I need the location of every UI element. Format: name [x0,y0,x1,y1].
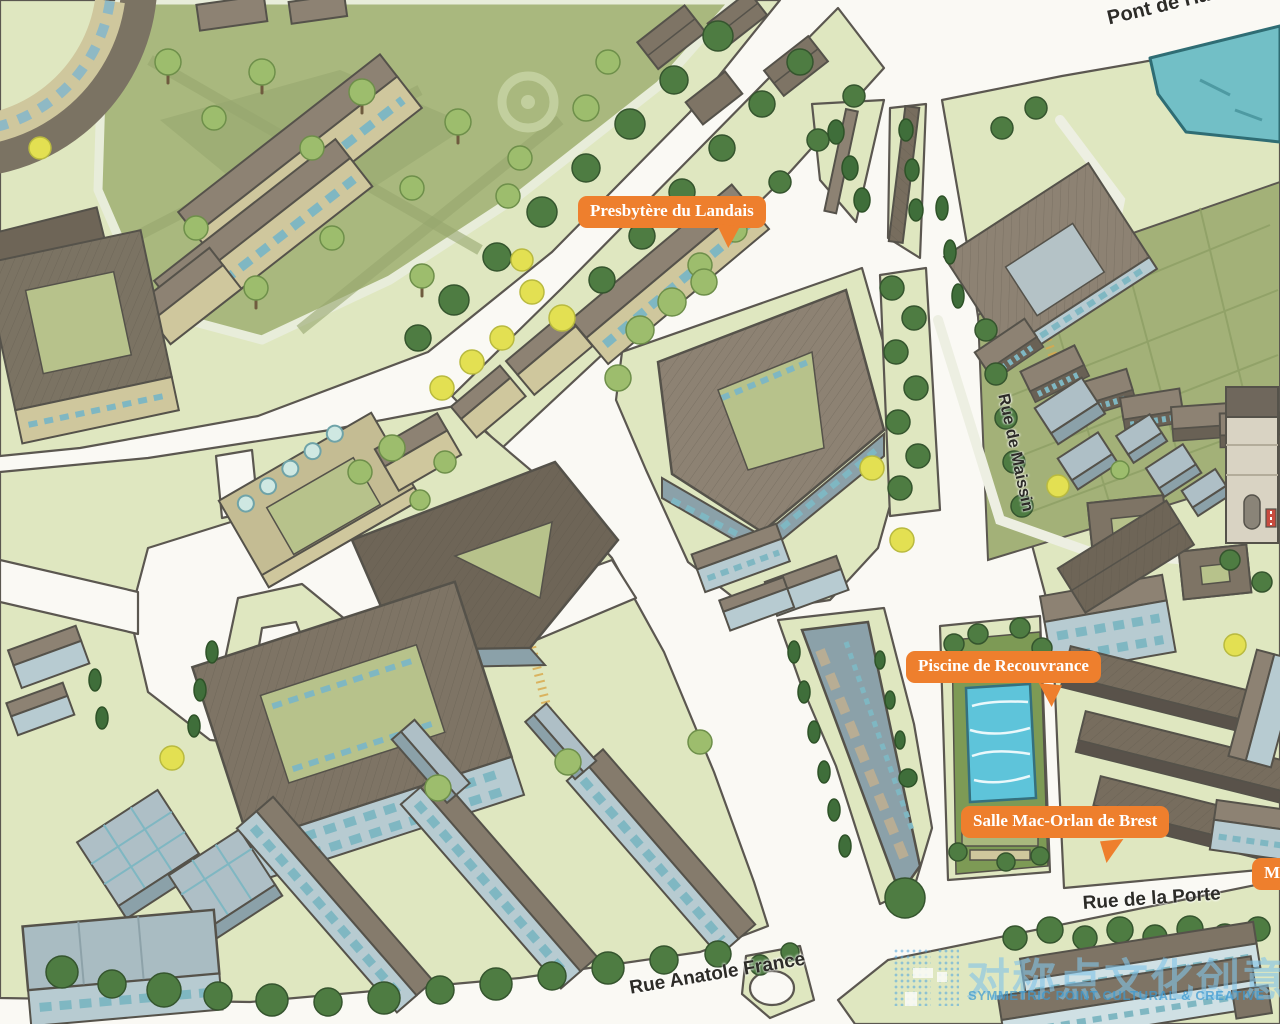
map-illustration [0,0,1280,1024]
poi-label-musee-clipped[interactable]: Mu [1252,858,1280,890]
poi-label-presbytere-du-landais[interactable]: Presbytère du Landais [578,196,766,228]
poi-label-salle-mac-orlan[interactable]: Salle Mac-Orlan de Brest [961,806,1169,838]
map-canvas: Pont de Harteloire Rue de Maissin Rue de… [0,0,1280,1024]
poi-label-piscine-de-recouvrance[interactable]: Piscine de Recouvrance [906,651,1101,683]
building-stone-church [1226,387,1278,543]
watermark-en-text: SYMMETRIC POINT CULTURAL & CREATIVE [968,988,1265,1003]
